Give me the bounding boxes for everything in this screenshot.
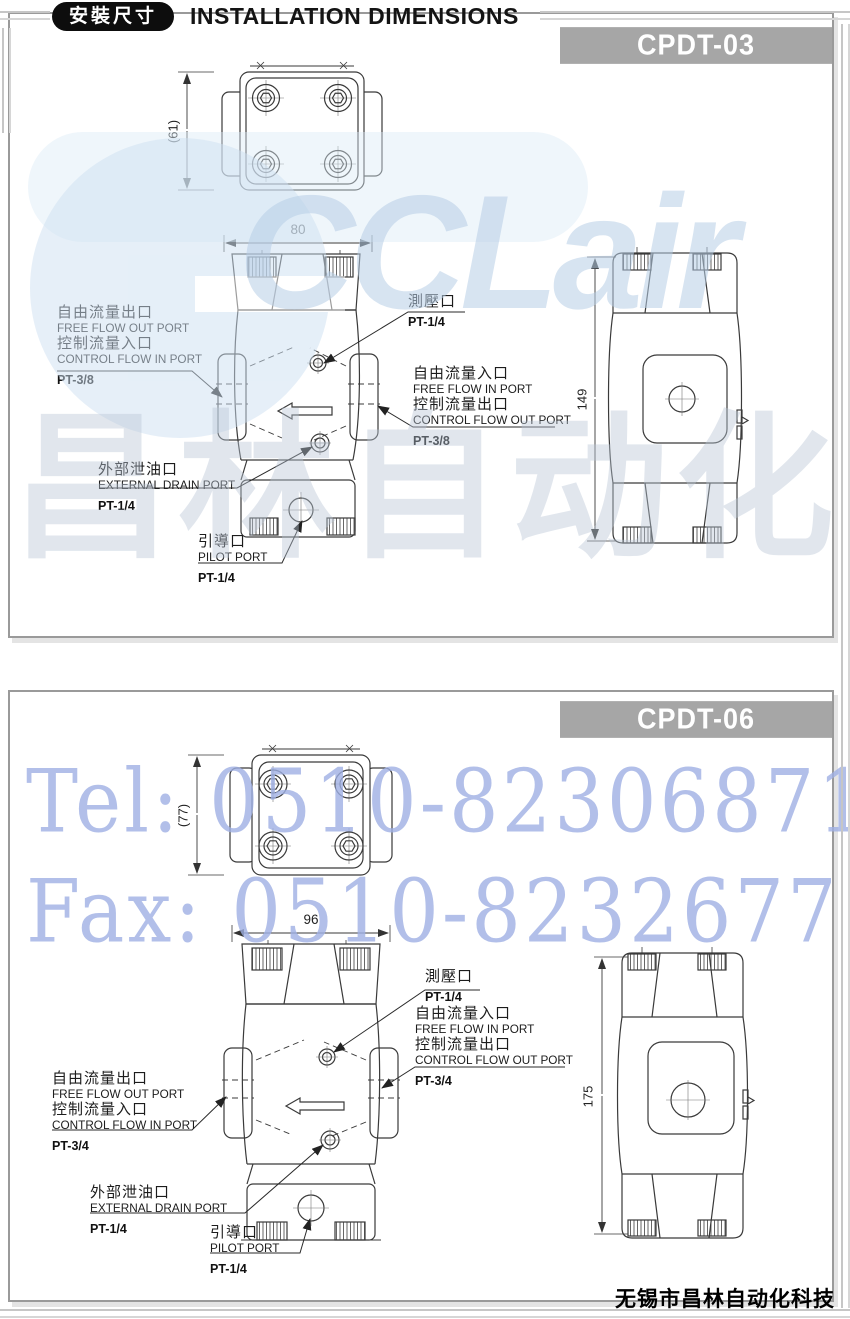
label-free-flow-out-port: 自由流量出口 FREE FLOW OUT PORT 控制流量入口 CONTROL… (52, 1070, 200, 1153)
label-zh: 測壓口 (425, 968, 473, 985)
header-badge: 安裝尺寸 (52, 2, 174, 31)
label-zh: 自由流量入口 (413, 365, 574, 382)
label-free-flow-out-port: 自由流量出口 FREE FLOW OUT PORT 控制流量入口 CONTROL… (57, 304, 205, 387)
label-en: FREE FLOW OUT PORT (57, 321, 202, 335)
label-en: CONTROL FLOW IN PORT (52, 1118, 197, 1132)
label-en: PILOT PORT (198, 550, 268, 564)
label-thread-size: PT-3/4 (415, 1074, 576, 1088)
label-en: CONTROL FLOW OUT PORT (413, 413, 571, 427)
frame-line-top-left (0, 11, 50, 20)
label-zh: 外部泄油口 (98, 461, 238, 478)
top-view (188, 745, 392, 875)
model-label-cpdt-06: CPDT-06 (560, 701, 832, 738)
label-thread-size: PT-3/8 (413, 434, 574, 448)
dim-body-width: 96 (291, 912, 331, 927)
label-zh: 控制流量入口 (52, 1101, 200, 1118)
label-thread-size: PT-1/4 (408, 315, 456, 329)
dim-top-view-height: (61) (166, 117, 181, 147)
label-zh: 自由流量出口 (52, 1070, 200, 1087)
dim-side-view-height: 175 (581, 1078, 596, 1116)
label-pilot-port: 引導口 PILOT PORT PT-1/4 (210, 1224, 281, 1276)
label-zh: 自由流量出口 (57, 304, 205, 321)
side-view (587, 247, 748, 543)
footer-company: 无锡市昌林自动化科技 (615, 1283, 835, 1313)
label-thread-size: PT-3/8 (57, 373, 205, 387)
label-zh: 控制流量入口 (57, 335, 205, 352)
label-thread-size: PT-1/4 (210, 1262, 281, 1276)
front-view (216, 235, 380, 537)
label-zh: 外部泄油口 (90, 1184, 230, 1201)
label-thread-size: PT-3/4 (52, 1139, 200, 1153)
catalog-page: { "header": { "badge_zh": "安裝尺寸", "title… (0, 0, 850, 1319)
side-view (594, 947, 754, 1238)
label-zh: 控制流量出口 (415, 1036, 576, 1053)
label-gauge-port: 測壓口 PT-1/4 (425, 968, 473, 1004)
label-en: EXTERNAL DRAIN PORT (98, 478, 235, 492)
dim-top-view-height: (77) (176, 801, 191, 831)
model-label-cpdt-03: CPDT-03 (560, 27, 832, 64)
frame-line-top-right (540, 11, 850, 20)
label-en: CONTROL FLOW OUT PORT (415, 1053, 573, 1067)
label-thread-size: PT-1/4 (98, 499, 238, 513)
label-free-flow-in-port: 自由流量入口 FREE FLOW IN PORT 控制流量出口 CONTROL … (415, 1005, 576, 1088)
label-en: FREE FLOW IN PORT (413, 382, 571, 396)
label-en: FREE FLOW IN PORT (415, 1022, 573, 1036)
label-zh: 引導口 (210, 1224, 281, 1241)
label-en: FREE FLOW OUT PORT (52, 1087, 197, 1101)
label-en: CONTROL FLOW IN PORT (57, 352, 202, 366)
label-zh: 引導口 (198, 533, 269, 550)
dim-body-width: 80 (278, 222, 318, 237)
page-title: INSTALLATION DIMENSIONS (190, 3, 519, 30)
label-en: EXTERNAL DRAIN PORT (90, 1201, 227, 1215)
label-zh: 自由流量入口 (415, 1005, 576, 1022)
panel-cpdt-03: CPDT-03 (8, 12, 834, 638)
label-pilot-port: 引導口 PILOT PORT PT-1/4 (198, 533, 269, 585)
label-zh: 測壓口 (408, 293, 456, 310)
label-thread-size: PT-1/4 (198, 571, 269, 585)
panel-cpdt-06: CPDT-06 (8, 690, 834, 1302)
frame-line-right (841, 24, 850, 1308)
label-zh: 控制流量出口 (413, 396, 574, 413)
label-en: PILOT PORT (210, 1241, 280, 1255)
frame-line-left (2, 28, 11, 133)
front-view (222, 925, 400, 1240)
label-gauge-port: 測壓口 PT-1/4 (408, 293, 456, 329)
label-thread-size: PT-1/4 (425, 990, 473, 1004)
dim-side-view-height: 149 (575, 381, 590, 419)
label-free-flow-in-port: 自由流量入口 FREE FLOW IN PORT 控制流量出口 CONTROL … (413, 365, 574, 448)
top-view (178, 62, 382, 190)
label-external-drain-port: 外部泄油口 EXTERNAL DRAIN PORT PT-1/4 (98, 461, 238, 513)
